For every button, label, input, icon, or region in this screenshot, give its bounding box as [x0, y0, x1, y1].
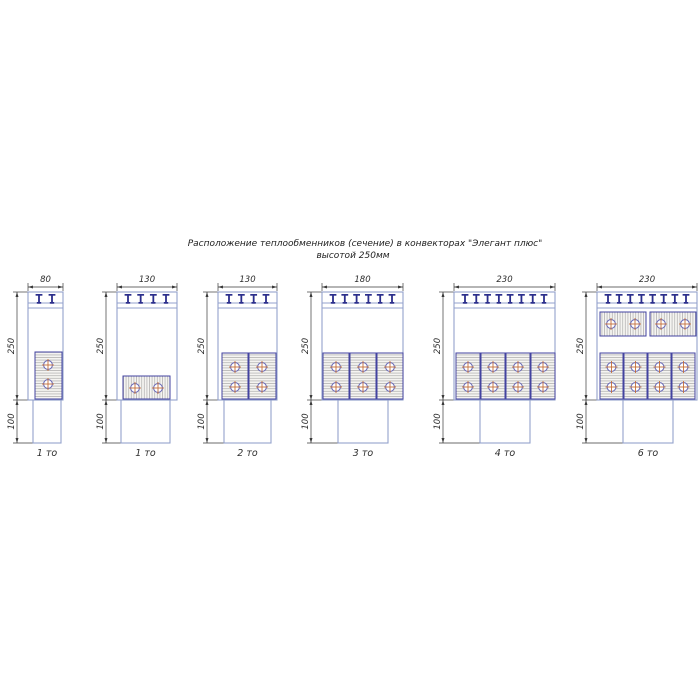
figure-5: 2302501004 то	[433, 275, 555, 459]
duct-height-dimension-label: 100	[433, 413, 443, 429]
duct-height-dimension-label: 100	[96, 413, 106, 429]
duct-height-dimension-label: 100	[576, 413, 586, 429]
width-dimension-label: 230	[639, 275, 655, 285]
duct-outline	[338, 400, 388, 443]
height-dimension-label: 250	[7, 338, 17, 354]
height-dimension-label: 250	[197, 338, 207, 354]
width-dimension-label: 80	[40, 275, 51, 285]
height-dimension-label: 250	[96, 338, 106, 354]
figure-caption: 6 то	[638, 448, 659, 459]
width-dimension-label: 230	[496, 275, 512, 285]
figure-caption: 2 то	[237, 448, 258, 459]
width-dimension-label: 130	[239, 275, 255, 285]
figure-caption: 4 то	[495, 448, 516, 459]
figure-caption: 1 то	[37, 448, 58, 459]
duct-outline	[623, 400, 673, 443]
convector-diagram: Расположение теплообменников (сечение) в…	[0, 0, 700, 700]
figure-caption: 3 то	[353, 448, 374, 459]
duct-outline	[121, 400, 170, 443]
figure-2: 1302501001 то	[96, 275, 177, 459]
height-dimension-label: 250	[433, 338, 443, 354]
duct-height-dimension-label: 100	[197, 413, 207, 429]
height-dimension-label: 250	[576, 338, 586, 354]
duct-height-dimension-label: 100	[301, 413, 311, 429]
figure-3: 1302501002 то	[197, 275, 277, 459]
duct-height-dimension-label: 100	[7, 413, 17, 429]
height-dimension-label: 250	[301, 338, 311, 354]
diagram-title-line2: высотой 250мм	[316, 251, 389, 261]
figure-6: 2302501006 то	[576, 275, 697, 459]
width-dimension-label: 130	[139, 275, 155, 285]
heat-exchanger-block	[249, 353, 276, 399]
figure-4: 1802501003 то	[301, 275, 403, 459]
duct-outline	[33, 400, 61, 443]
figures-layer: 802501001 то1302501001 то1302501002 то18…	[7, 275, 697, 459]
diagram-title-line1: Расположение теплообменников (сечение) в…	[188, 239, 543, 249]
drawing-canvas: Расположение теплообменников (сечение) в…	[0, 0, 700, 700]
heat-exchanger-block	[35, 352, 62, 399]
figure-caption: 1 то	[135, 448, 156, 459]
width-dimension-label: 180	[354, 275, 370, 285]
duct-outline	[224, 400, 271, 443]
figure-1: 802501001 то	[7, 275, 63, 459]
heat-exchanger-block	[123, 376, 170, 399]
duct-outline	[480, 400, 530, 443]
